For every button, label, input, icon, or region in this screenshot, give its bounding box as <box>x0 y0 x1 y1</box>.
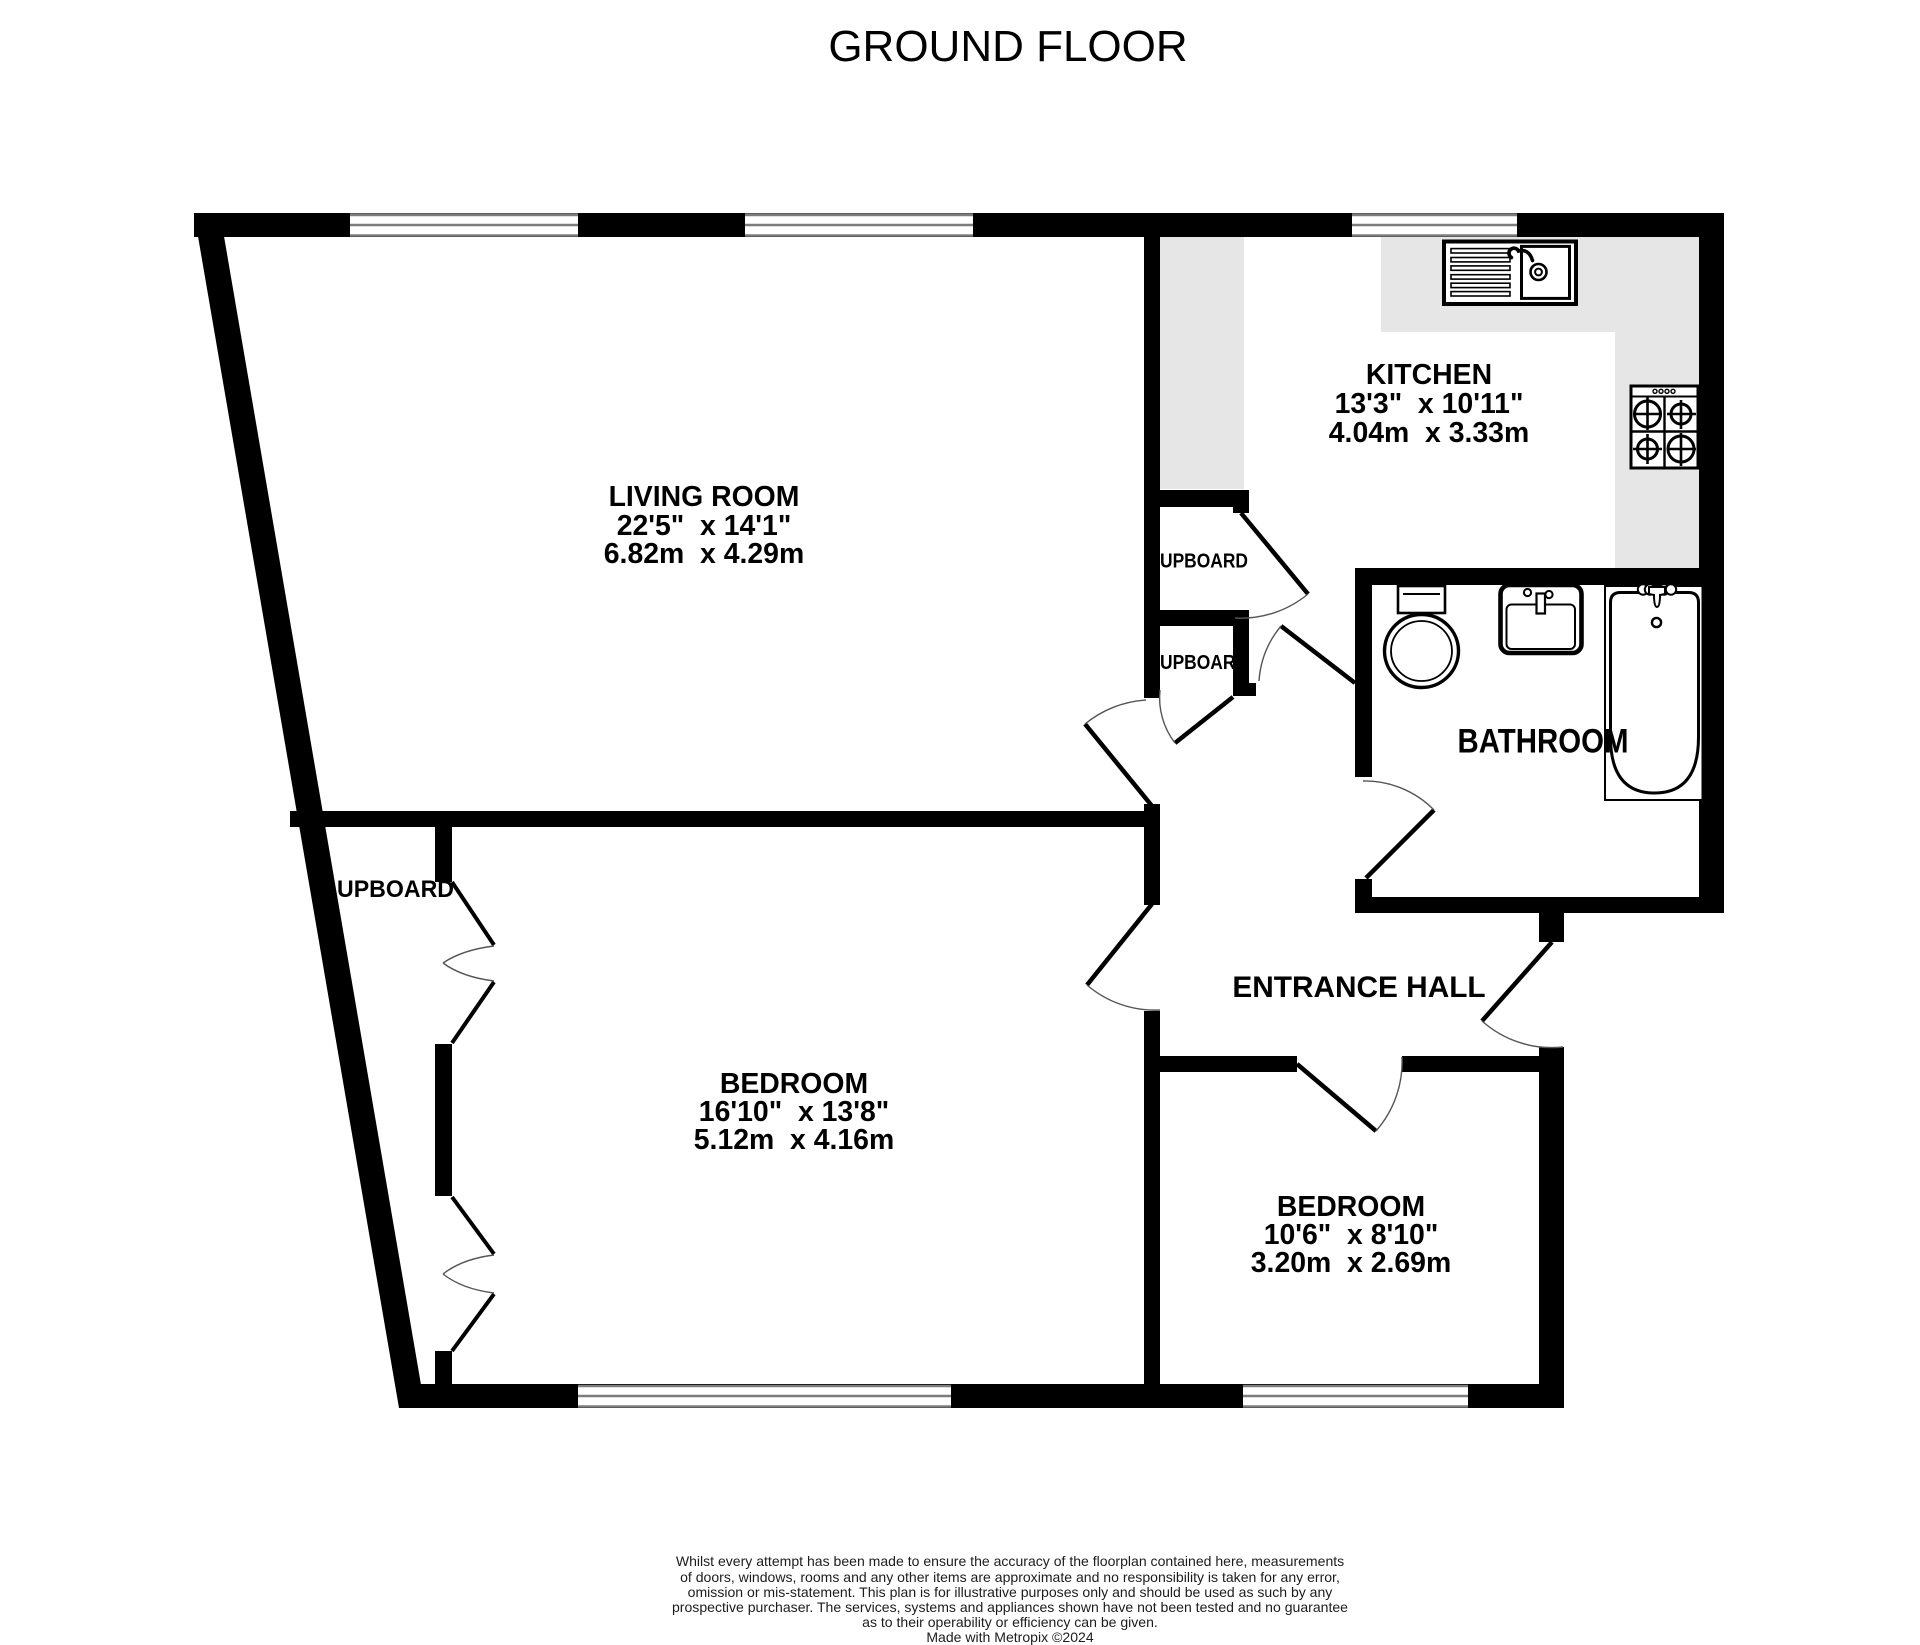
svg-text:LIVING ROOM: LIVING ROOM <box>609 481 800 513</box>
svg-text:Made with Metropix ©2024: Made with Metropix ©2024 <box>926 1629 1093 1645</box>
svg-text:3.20m x 2.69m: 3.20m x 2.69m <box>1251 1247 1451 1279</box>
svg-text:omission or mis-statement. Thi: omission or mis-statement. This plan is … <box>688 1584 1333 1600</box>
svg-text:UPBOARD: UPBOARD <box>1160 550 1248 573</box>
svg-text:ENTRANCE HALL: ENTRANCE HALL <box>1232 971 1485 1004</box>
svg-text:13'3" x 10'11": 13'3" x 10'11" <box>1335 388 1524 420</box>
svg-text:4.04m x 3.33m: 4.04m x 3.33m <box>1329 417 1529 449</box>
svg-text:5.12m x 4.16m: 5.12m x 4.16m <box>694 1124 894 1156</box>
svg-text:BATHROOM: BATHROOM <box>1458 723 1629 761</box>
svg-text:as to their operability or eff: as to their operability or efficiency ca… <box>862 1614 1158 1630</box>
svg-text:Whilst every attempt has been: Whilst every attempt has been made to en… <box>676 1553 1344 1569</box>
svg-text:GROUND FLOOR: GROUND FLOOR <box>828 22 1187 71</box>
svg-text:KITCHEN: KITCHEN <box>1366 359 1492 391</box>
svg-text:6.82m x 4.29m: 6.82m x 4.29m <box>604 538 804 570</box>
svg-text:of doors, windows, rooms and a: of doors, windows, rooms and any other i… <box>680 1569 1340 1585</box>
svg-text:prospective purchaser. The ser: prospective purchaser. The services, sys… <box>672 1599 1348 1615</box>
